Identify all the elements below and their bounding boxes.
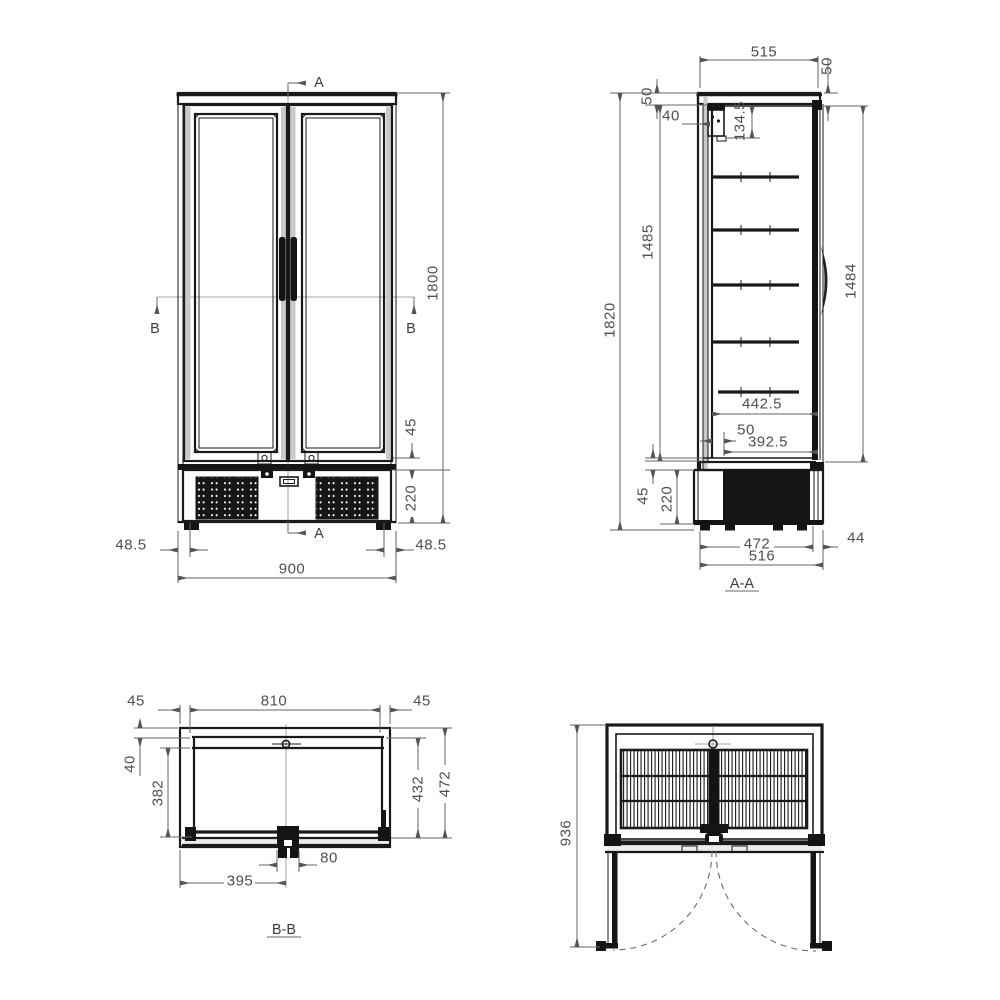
- vent-grille-right: [316, 477, 378, 519]
- dim-front-base: 220: [403, 485, 420, 512]
- aa-door: [812, 104, 828, 462]
- section-label-b-left: B: [150, 321, 160, 337]
- dim-aa-door-thickness: 44: [847, 530, 865, 547]
- dim-top-open-depth: 936: [558, 820, 575, 847]
- aa-base: [694, 462, 823, 531]
- door-swing-arc-right: [716, 851, 816, 951]
- section-label-b-right: B: [406, 321, 416, 337]
- top-view: 936: [558, 725, 833, 951]
- dim-aa-gap: 45: [635, 487, 652, 505]
- dim-front-gap: 45: [403, 418, 420, 436]
- dim-front-offset-right: 48.5: [415, 537, 446, 554]
- dim-aa-shelf-depth: 442.5: [742, 396, 782, 413]
- dim-bb-liner-depth: 382: [150, 780, 167, 807]
- aa-evaporator: [707, 104, 726, 141]
- section-label-a-top: A: [314, 75, 324, 91]
- dim-front-height: 1800: [425, 265, 442, 300]
- dim-aa-base-height: 220: [659, 486, 676, 513]
- compressor: [723, 470, 810, 520]
- dim-front-width: 900: [279, 561, 306, 578]
- left-door-handle: [279, 237, 286, 301]
- bb-title: B-B: [267, 922, 301, 938]
- bb-dimensions: 45 810 45 40 382 432 472: [122, 693, 454, 890]
- dim-aa-top-left: 50: [639, 87, 656, 105]
- front-view: A A B B 1800 45 220: [115, 75, 450, 583]
- dim-aa-depth-total: 516: [749, 548, 776, 565]
- section-marker-a-bottom: A: [288, 521, 324, 542]
- right-door-handle: [291, 237, 298, 301]
- dim-aa-total-height: 1820: [602, 302, 619, 337]
- top-dimensions: 936: [558, 725, 606, 947]
- section-label-a-bottom: A: [314, 526, 324, 542]
- svg-text:A-A: A-A: [730, 576, 755, 592]
- dim-aa-top-width: 515: [751, 44, 778, 61]
- dim-bb-wall-left: 45: [127, 693, 145, 710]
- vent-grille-left: [196, 477, 258, 519]
- badge: [280, 477, 298, 486]
- dim-aa-top-right: 50: [819, 57, 836, 75]
- foot-left: [184, 523, 199, 530]
- door-swing-arc-left: [613, 851, 712, 950]
- section-aa-view: 515 50 1484 50 40 134.5 1485: [602, 44, 869, 593]
- section-marker-b-left: B: [150, 297, 160, 337]
- dim-front-offset-left: 48.5: [115, 537, 146, 554]
- top-open-door-right: [810, 852, 832, 951]
- dim-aa-evap-height: 134.5: [732, 101, 749, 141]
- dim-bb-back-wall: 40: [122, 755, 139, 773]
- drawing-svg: A A B B 1800 45 220: [0, 0, 1000, 1000]
- bb-front-assembly: [182, 826, 389, 858]
- svg-text:B-B: B-B: [272, 922, 296, 938]
- dim-aa-inner-depth: 392.5: [748, 434, 788, 451]
- aa-title: A-A: [725, 576, 759, 592]
- dim-bb-door-depth: 432: [410, 776, 427, 803]
- aa-door-handle: [821, 246, 828, 316]
- dim-aa-evap-width: 40: [662, 108, 680, 125]
- dim-bb-wall-right: 45: [413, 693, 431, 710]
- technical-drawing-sheet: A A B B 1800 45 220: [0, 0, 1000, 1000]
- dim-aa-inner-height: 1485: [640, 224, 657, 259]
- section-bb-view: 45 810 45 40 382 432 472: [122, 693, 454, 939]
- aa-shelves: [712, 172, 799, 397]
- left-door: [184, 105, 287, 461]
- dim-bb-inner-width: 810: [261, 693, 288, 710]
- dim-aa-door-height: 1484: [843, 263, 860, 298]
- right-door: [289, 105, 392, 461]
- plinth: [183, 470, 391, 521]
- top-open-door-left: [596, 852, 618, 951]
- dim-bb-mullion: 80: [320, 850, 338, 867]
- dim-bb-depth-total: 472: [437, 771, 454, 798]
- section-marker-b-right: B: [406, 297, 416, 337]
- dim-bb-half-width: 395: [227, 873, 254, 890]
